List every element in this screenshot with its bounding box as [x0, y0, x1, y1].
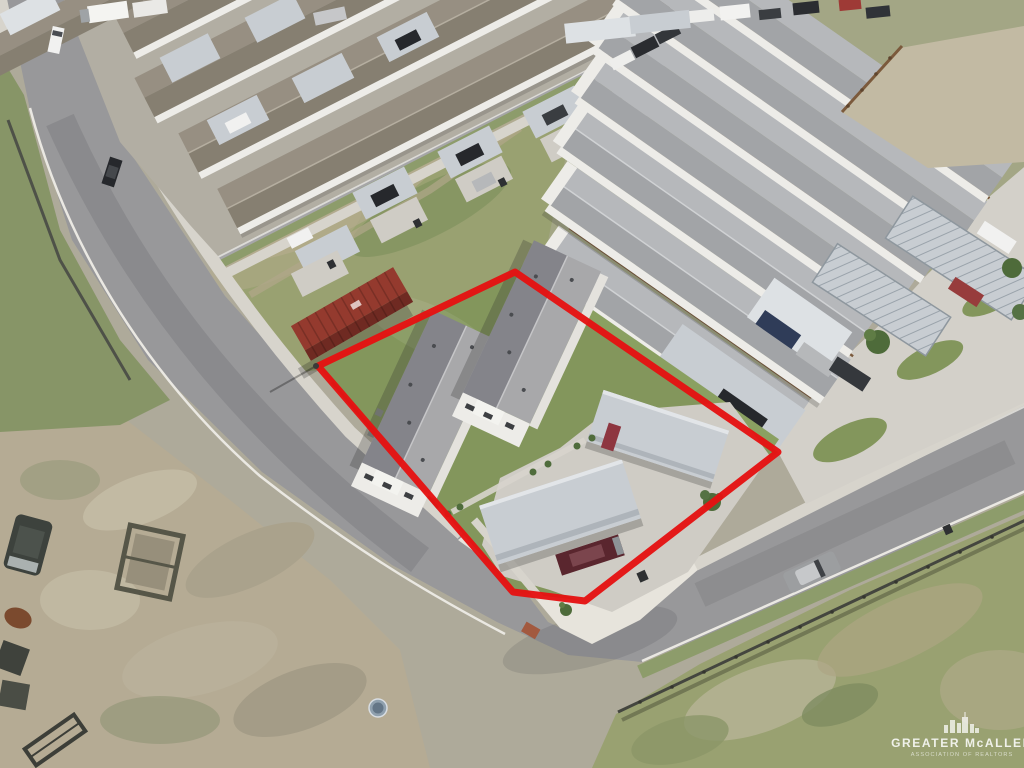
watermark-subtitle: ASSOCIATION OF REALTORS [911, 752, 1013, 758]
tree [1002, 258, 1022, 278]
aerial-photo-canvas: GREATER McALLEN ASSOCIATION OF REALTORS [0, 0, 1024, 768]
watermark-title: GREATER McALLEN [891, 736, 1024, 750]
dark-equipment [0, 680, 30, 710]
manhole-cover [369, 699, 387, 717]
aerial-photo: GREATER McALLEN ASSOCIATION OF REALTORS [0, 0, 1024, 768]
